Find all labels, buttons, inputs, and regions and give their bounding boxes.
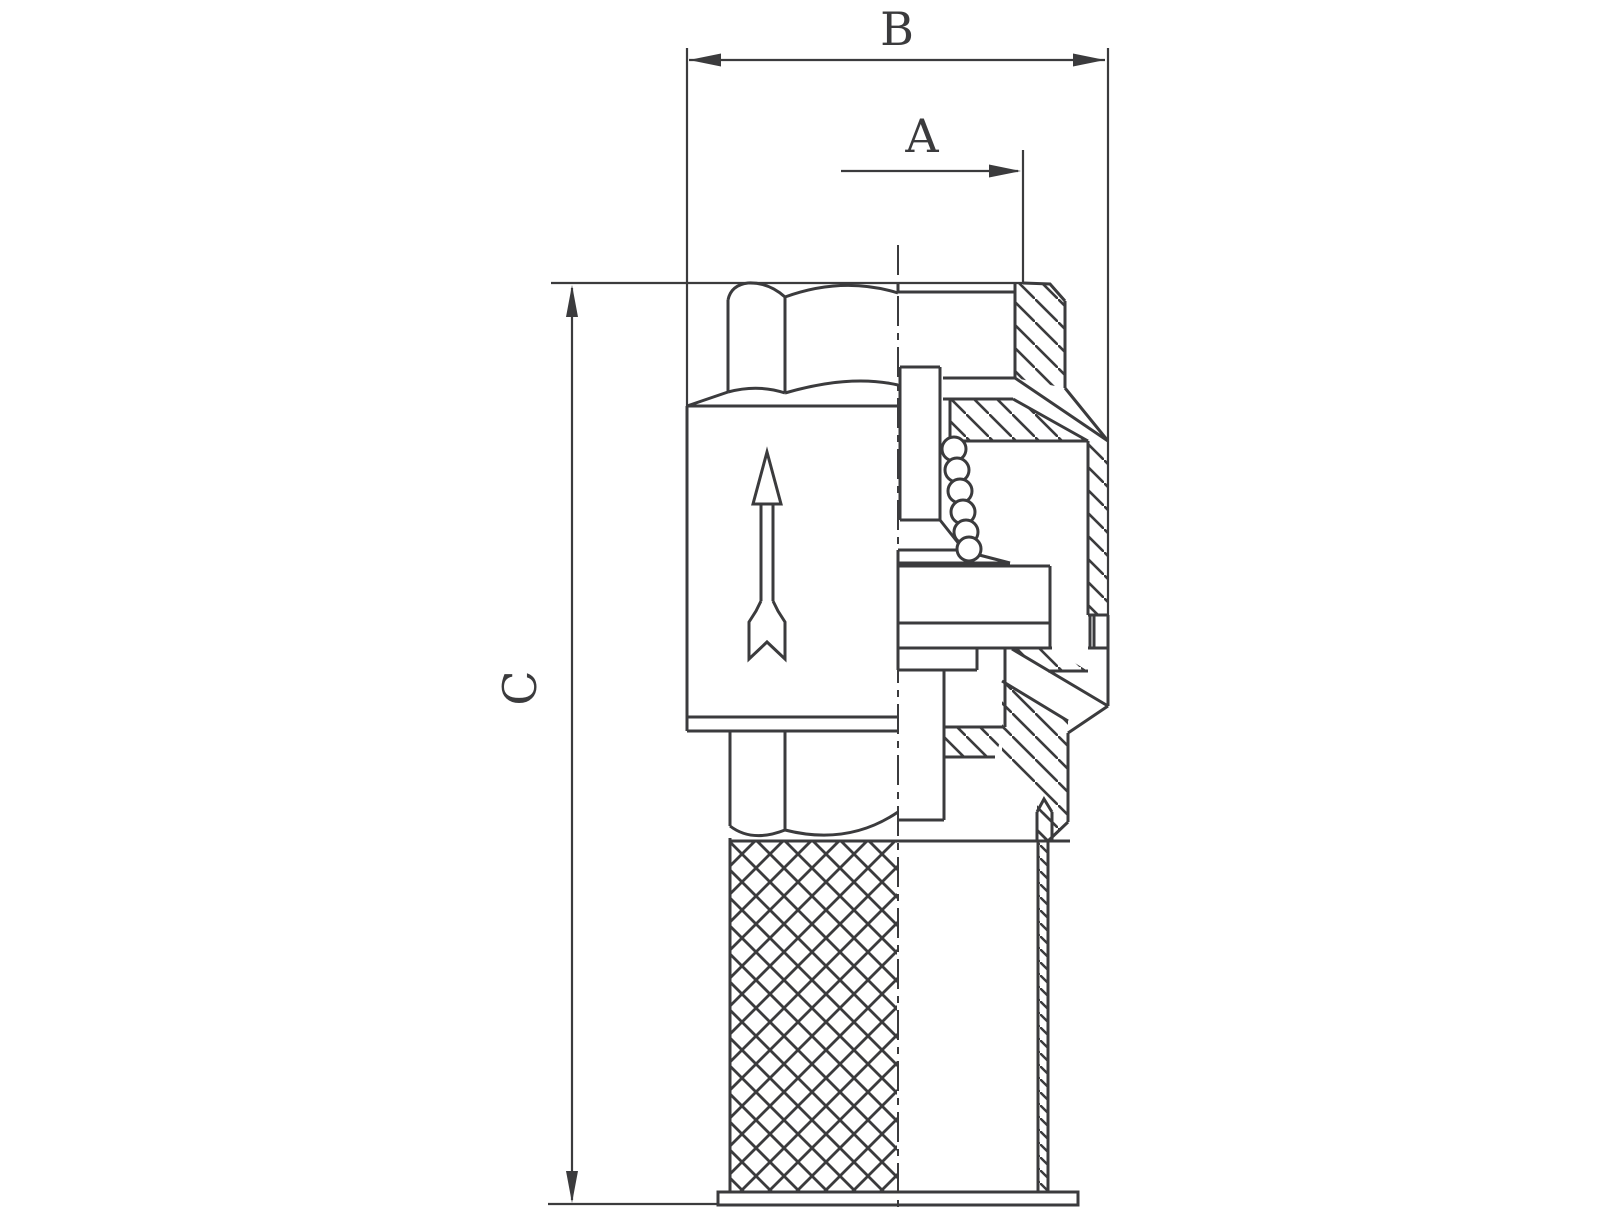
skirt-hatch [1002,681,1068,841]
collar-hatch [1037,812,1052,841]
valve-section-drawing: B A C [0,0,1621,1216]
dim-a-label: A [904,109,939,163]
flange-wall-hatch [1088,441,1108,615]
strainer-mesh [731,842,897,1192]
outlet-upper-hatch [1012,649,1088,671]
dimension-a [841,150,1023,283]
dim-c-label: C [493,670,547,705]
thread-hatch [1015,284,1065,388]
dimension-labels: B A C [493,2,939,706]
boss-hatch [944,727,1005,757]
body-barrel [687,406,898,731]
dim-b-label: B [880,2,914,56]
drawing-canvas: B A C [0,0,1621,1216]
hex-cap [687,283,898,406]
seat-hatch [950,399,1088,441]
flow-direction-arrow-icon [749,452,785,659]
lower-hex [730,731,898,836]
spring-coils [942,437,981,561]
